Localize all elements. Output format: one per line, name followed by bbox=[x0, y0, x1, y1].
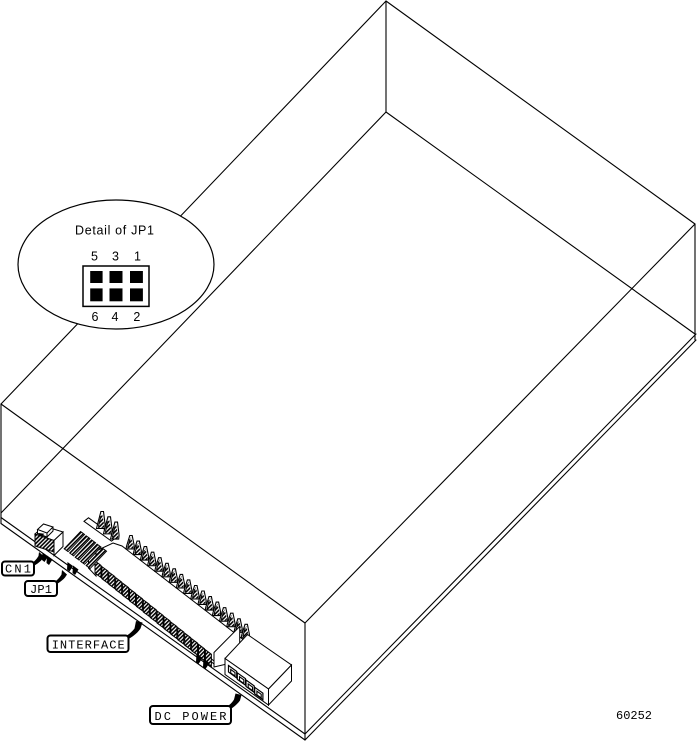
svg-text:3: 3 bbox=[112, 250, 119, 264]
svg-text:2: 2 bbox=[133, 310, 140, 324]
svg-text:CN1: CN1 bbox=[5, 563, 31, 577]
svg-text:JP1: JP1 bbox=[30, 583, 52, 597]
svg-text:6: 6 bbox=[92, 310, 99, 324]
svg-text:60252: 60252 bbox=[616, 709, 652, 723]
svg-text:1: 1 bbox=[134, 250, 141, 264]
svg-text:INTERFACE: INTERFACE bbox=[52, 638, 125, 652]
svg-text:Detail of JP1: Detail of JP1 bbox=[75, 224, 154, 238]
svg-text:4: 4 bbox=[112, 310, 119, 324]
svg-text:5: 5 bbox=[91, 250, 98, 264]
